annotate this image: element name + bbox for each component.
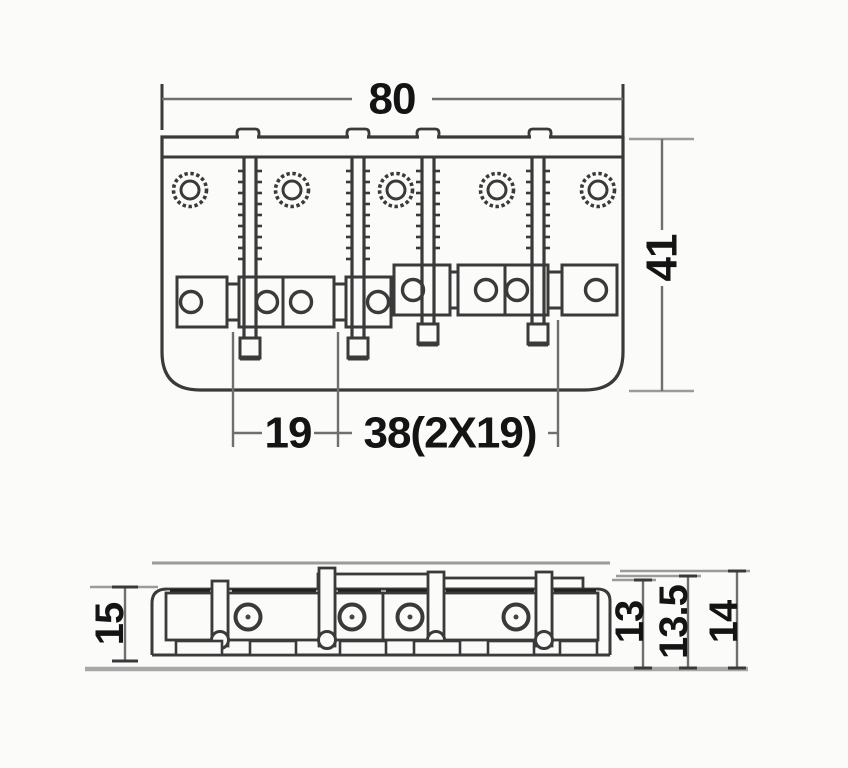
diagram-svg: 80 — [0, 0, 848, 768]
bridge-dimension-diagram: 80 — [0, 0, 848, 768]
dim-height-label: 41 — [638, 234, 687, 281]
saddles-low — [177, 277, 391, 327]
dim-spacing-label: 19 — [265, 409, 312, 458]
saddles-high — [394, 265, 617, 315]
dim-side-left-height: 15 — [88, 587, 158, 661]
dim-14-label: 14 — [702, 599, 746, 643]
dim-side-right-heights: 13 13.5 14 — [608, 571, 750, 668]
dim-15-label: 15 — [88, 602, 132, 645]
dim-13-5-label: 13.5 — [652, 584, 696, 659]
dim-width: 80 — [162, 75, 623, 138]
base-feet — [176, 641, 597, 655]
top-view: 80 — [162, 75, 694, 458]
side-saddle-blocks — [166, 593, 598, 640]
dim-width-label: 80 — [369, 75, 416, 124]
dim-height: 41 — [629, 139, 694, 391]
dim-13-label: 13 — [608, 601, 652, 644]
dim-total-spacing-label: 38(2X19) — [363, 409, 536, 458]
saddle-platform-mid — [435, 578, 583, 589]
side-view: 15 13 13.5 14 — [85, 563, 750, 669]
